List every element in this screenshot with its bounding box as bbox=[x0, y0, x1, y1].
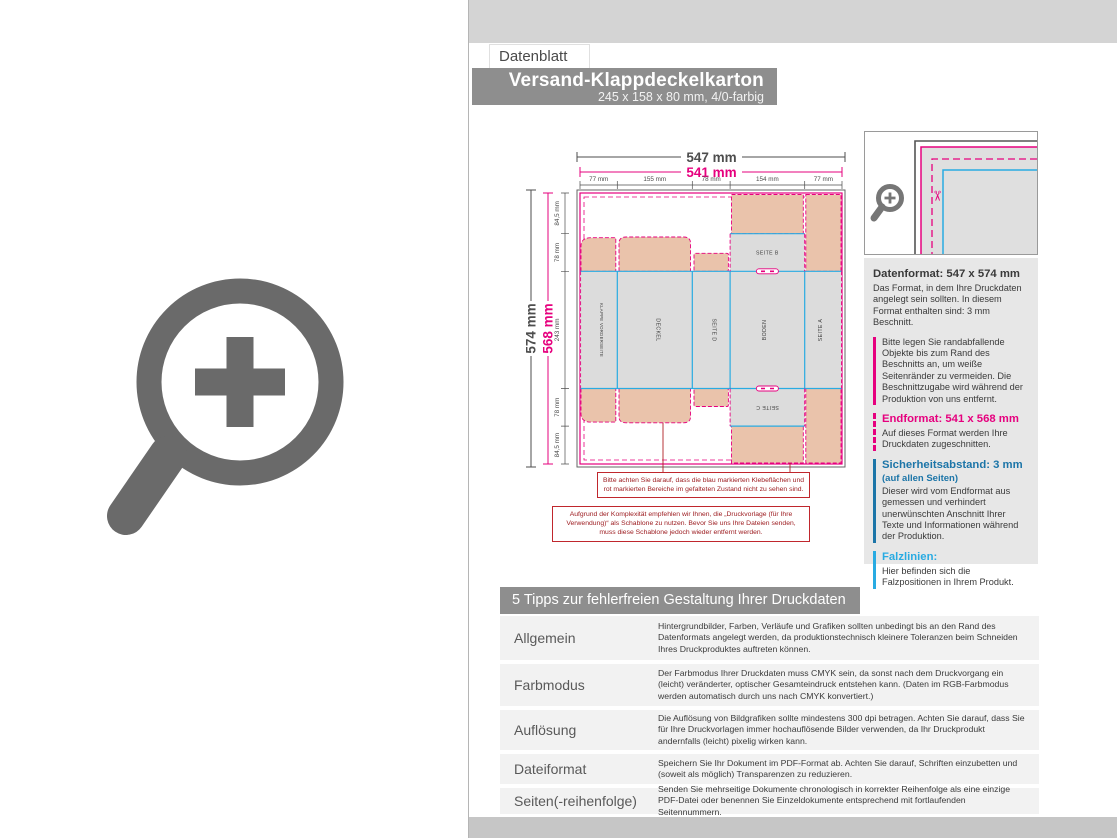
zoom-plus-icon[interactable] bbox=[100, 275, 385, 570]
endformat-body: Auf dieses Format werden Ihre Druckdaten… bbox=[882, 428, 1029, 451]
tips-header: 5 Tipps zur fehlerfreien Gestaltung Ihre… bbox=[500, 587, 860, 614]
label-seite-b: SEITE B bbox=[756, 251, 779, 257]
plus-glyph bbox=[195, 337, 285, 427]
sicherheitsabstand-title: Sicherheitsabstand: 3 mm bbox=[882, 459, 1029, 472]
flap-top-right bbox=[806, 195, 841, 272]
row-text: Die Auflösung von Bildgrafiken sollte mi… bbox=[658, 709, 1039, 751]
flap-bottom-right bbox=[806, 389, 841, 464]
row-text: Hintergrundbilder, Farben, Verläufe und … bbox=[658, 617, 1039, 659]
svg-text:84,5 mm: 84,5 mm bbox=[554, 433, 561, 458]
flap-bottom-col4 bbox=[732, 426, 804, 463]
svg-text:78 mm: 78 mm bbox=[702, 176, 721, 183]
title-bar: Versand-Klappdeckelkarton 245 x 158 x 80… bbox=[472, 68, 777, 105]
page-subtitle: 245 x 158 x 80 mm, 4/0-farbig bbox=[472, 91, 764, 104]
svg-text:574 mm: 574 mm bbox=[524, 303, 539, 353]
table-row-aufloesung: Auflösung Die Auflösung von Bildgrafiken… bbox=[500, 710, 1039, 750]
row-label: Auflösung bbox=[500, 722, 658, 738]
dim-columns: 77 mm 155 mm 78 mm 154 mm 77 mm bbox=[580, 176, 842, 189]
section-datenformat: Datenformat: 547 x 574 mm Das Format, in… bbox=[873, 268, 1029, 329]
svg-text:77 mm: 77 mm bbox=[814, 176, 833, 183]
row-text: Der Farbmodus Ihrer Druckdaten muss CMYK… bbox=[658, 664, 1039, 706]
bleed-hint-body: Bitte legen Sie randabfallende Objekte b… bbox=[882, 337, 1029, 405]
falzlinien-title: Falzlinien: bbox=[882, 551, 1029, 564]
dim-total-width: 547 mm bbox=[577, 150, 845, 165]
format-info-panel: Datenformat: 547 x 574 mm Das Format, in… bbox=[864, 258, 1038, 564]
tips-title: 5 Tipps zur fehlerfreien Gestaltung Ihre… bbox=[512, 592, 846, 608]
dim-rows: 84,5 mm 78 mm 243 mm 78 mm 84,5 mm bbox=[554, 193, 569, 464]
svg-text:78 mm: 78 mm bbox=[554, 398, 561, 417]
svg-text:84,5 mm: 84,5 mm bbox=[554, 201, 561, 226]
top-band bbox=[469, 0, 1117, 43]
svg-text:154 mm: 154 mm bbox=[756, 176, 779, 183]
sicherheitsabstand-subtitle: (auf allen Seiten) bbox=[882, 474, 1029, 485]
datenblatt-tab: Datenblatt bbox=[489, 44, 590, 69]
table-row-farbmodus: Farbmodus Der Farbmodus Ihrer Druckdaten… bbox=[500, 664, 1039, 706]
label-klappe-vorderseite: KLAPPE VORDERSEITE bbox=[599, 303, 604, 357]
svg-text:77 mm: 77 mm bbox=[589, 176, 608, 183]
row-label: Dateiformat bbox=[500, 761, 658, 777]
datenblatt-tab-label: Datenblatt bbox=[499, 48, 567, 65]
falzlinien-body: Hier befinden sich die Falzpositionen in… bbox=[882, 566, 1029, 589]
table-row-seitenreihenfolge: Seiten(-reihenfolge) Senden Sie mehrseit… bbox=[500, 788, 1039, 814]
flap-top-col3 bbox=[694, 253, 728, 271]
magnifier-icon bbox=[874, 187, 902, 219]
page-title: Versand-Klappdeckelkarton bbox=[472, 71, 764, 91]
magnifier-handle bbox=[126, 455, 168, 516]
label-seite-d: SEITE D bbox=[711, 319, 717, 342]
note-glue-areas-text: Bitte achten Sie darauf, dass die blau m… bbox=[603, 477, 804, 493]
corner-zoom: ✂ bbox=[915, 141, 1037, 254]
datenformat-body: Das Format, in dem Ihre Druckdaten angel… bbox=[873, 283, 1029, 329]
note-glue-areas: Bitte achten Sie darauf, dass die blau m… bbox=[597, 472, 810, 498]
section-falzlinien: Falzlinien: Hier befinden sich die Falzp… bbox=[873, 551, 1029, 589]
table-row-allgemein: Allgemein Hintergrundbilder, Farben, Ver… bbox=[500, 616, 1039, 660]
tips-table: Allgemein Hintergrundbilder, Farben, Ver… bbox=[500, 616, 1039, 814]
label-seite-a: SEITE A bbox=[818, 319, 824, 342]
corner-detail-box: ✂ bbox=[864, 131, 1038, 255]
datenformat-title: Datenformat: 547 x 574 mm bbox=[873, 268, 1029, 281]
section-bleed-hint: Bitte legen Sie randabfallende Objekte b… bbox=[873, 337, 1029, 405]
note-template: Aufgrund der Komplexität empfehlen wir I… bbox=[552, 506, 810, 542]
flap-top-col1 bbox=[581, 238, 616, 272]
row-text: Senden Sie mehrseitige Dokumente chronol… bbox=[658, 780, 1039, 822]
svg-text:547 mm: 547 mm bbox=[686, 150, 736, 165]
row-label: Farbmodus bbox=[500, 677, 658, 693]
flap-top-col4 bbox=[732, 195, 804, 234]
note-template-text: Aufgrund der Komplexität empfehlen wir I… bbox=[566, 511, 795, 536]
row-label: Allgemein bbox=[500, 630, 658, 646]
label-deckel: DECKEL bbox=[654, 318, 660, 341]
scissors-icon: ✂ bbox=[930, 190, 946, 202]
corner-detail-graphic: ✂ bbox=[865, 132, 1037, 254]
flap-top-col2 bbox=[619, 237, 691, 271]
sicherheitsabstand-body: Dieser wird vom Endformat aus gemessen u… bbox=[882, 486, 1029, 543]
svg-text:243 mm: 243 mm bbox=[554, 319, 561, 342]
section-sicherheitsabstand: Sicherheitsabstand: 3 mm (auf allen Seit… bbox=[873, 459, 1029, 543]
dim-total-height: 574 mm bbox=[524, 190, 539, 467]
label-boden: BODEN bbox=[762, 320, 768, 340]
flap-bottom-col3 bbox=[694, 389, 728, 407]
svg-text:78 mm: 78 mm bbox=[554, 243, 561, 262]
section-endformat: Endformat: 541 x 568 mm Auf dieses Forma… bbox=[873, 413, 1029, 451]
flap-bottom-col1 bbox=[581, 389, 616, 423]
flap-bottom-col2 bbox=[619, 389, 691, 423]
label-seite-c: SEITE C bbox=[756, 404, 779, 410]
svg-text:155 mm: 155 mm bbox=[643, 176, 666, 183]
endformat-title: Endformat: 541 x 568 mm bbox=[882, 413, 1029, 426]
row-label: Seiten(-reihenfolge) bbox=[500, 793, 658, 809]
